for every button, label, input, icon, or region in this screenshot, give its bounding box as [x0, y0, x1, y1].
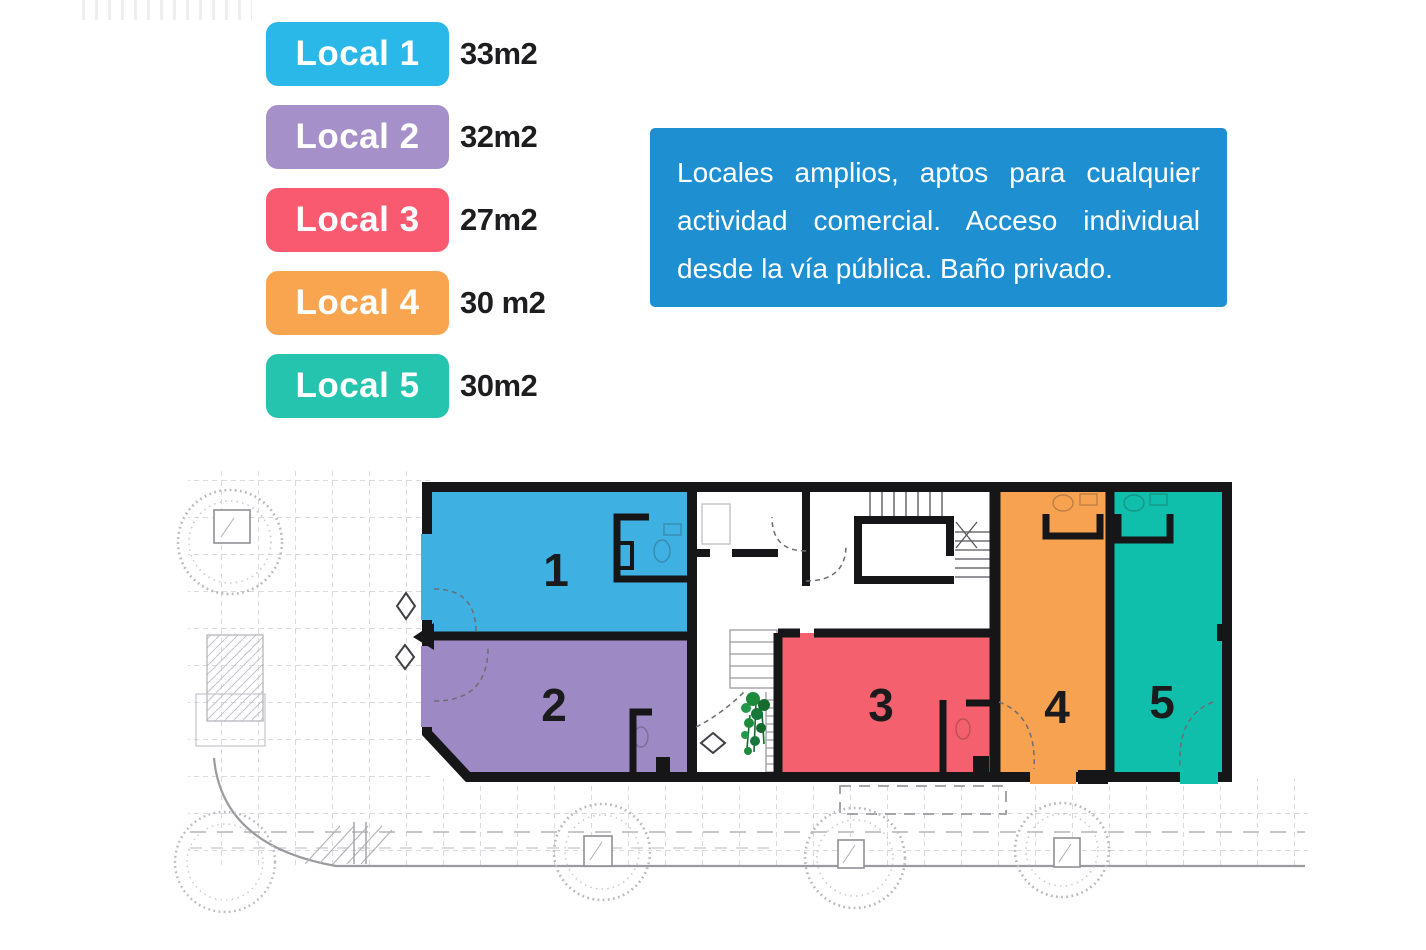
page: Local 1 33m2 Local 2 32m2 Local 3 27m2 L…	[0, 0, 1426, 950]
room-4-area	[995, 487, 1110, 777]
door-tab	[1078, 770, 1108, 784]
elevator-opening	[944, 556, 955, 576]
wall-bump	[1217, 624, 1230, 641]
wall-block	[973, 756, 989, 772]
room-3-label: 3	[868, 679, 894, 731]
door-opening-4	[1030, 771, 1076, 784]
corner-notch	[433, 497, 443, 513]
room-4-label: 4	[1044, 681, 1070, 733]
floorplan: 1 2 3 4 5	[0, 0, 1426, 950]
room-1-label: 1	[543, 544, 569, 596]
building: 1 2 3 4 5	[396, 487, 1230, 784]
room-2-label: 2	[541, 679, 567, 731]
storefront-opening-1	[421, 534, 434, 620]
room-5-label: 5	[1149, 676, 1175, 728]
wall-block	[656, 757, 670, 772]
storefront-opening-2	[421, 646, 434, 727]
door-opening-5	[1180, 771, 1218, 784]
hatched-structure	[207, 635, 263, 721]
